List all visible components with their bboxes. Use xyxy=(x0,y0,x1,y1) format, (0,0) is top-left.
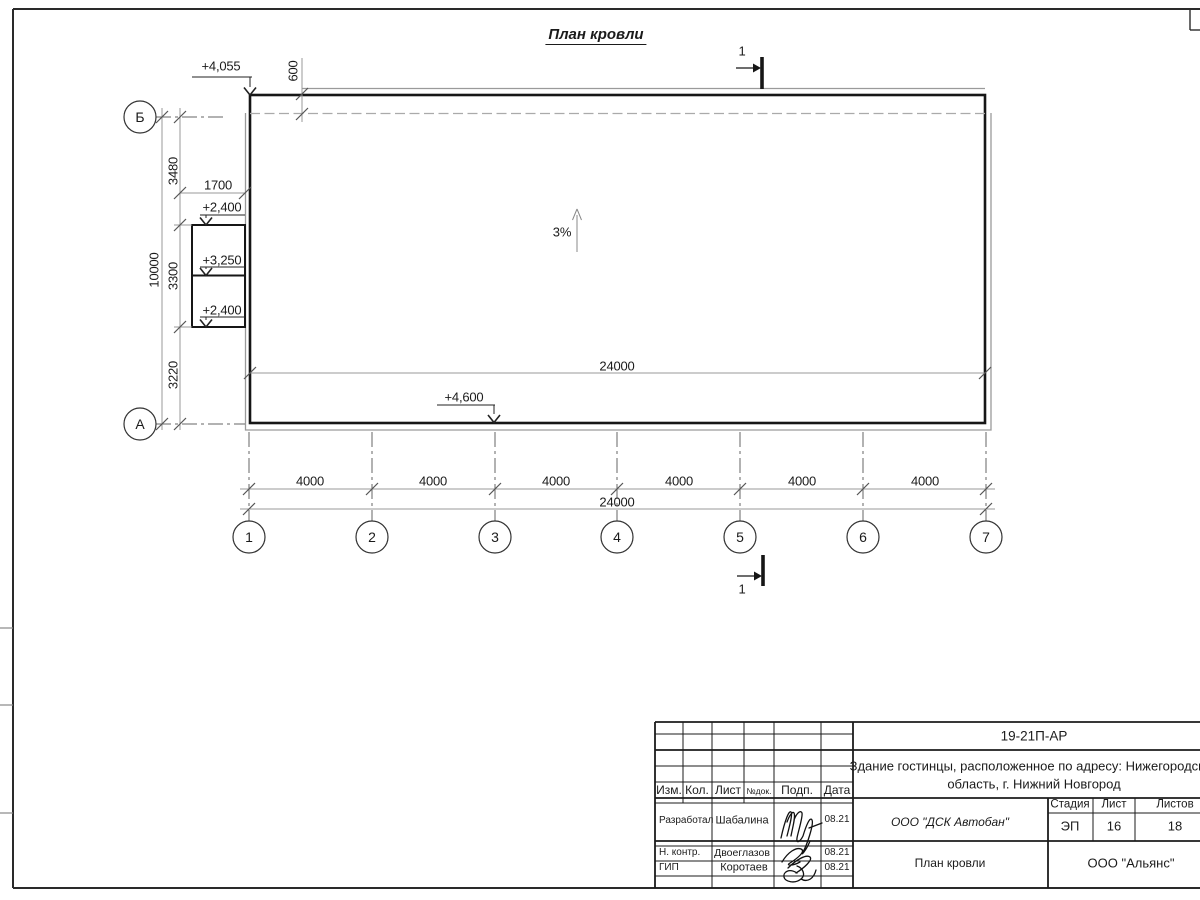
dim-bottom-total: 24000 xyxy=(599,496,634,509)
tb-stage-value: ЭП xyxy=(1061,820,1080,833)
dim-bottom-segment-6: 4000 xyxy=(911,475,939,488)
elevation-canopy-bottom: +2,400 xyxy=(203,304,242,317)
tb-name-ncontrol: Двоеглазов xyxy=(714,848,770,859)
elevation-leaders xyxy=(192,77,500,423)
slope-label: 3% xyxy=(553,226,571,239)
elevation-canopy-mid: +3,250 xyxy=(203,254,242,267)
tb-doc-code: 19-21П-АР xyxy=(1001,729,1068,743)
dim-bottom-segment-2: 4000 xyxy=(419,475,447,488)
tb-project-name-line2: область, г. Нижний Новгород xyxy=(947,778,1120,791)
axis-label-b: Б xyxy=(135,110,144,124)
axis-label-7: 7 xyxy=(982,530,990,544)
tb-org: ООО "ДСК Автобан" xyxy=(891,816,1009,828)
tb-col-izm: Изм. xyxy=(656,784,682,796)
frame-corner-cell xyxy=(1190,9,1200,30)
axis-label-6: 6 xyxy=(859,530,867,544)
tb-col-ndok: №док. xyxy=(747,787,772,796)
dim-parapet: 600 xyxy=(287,60,300,81)
dim-bottom-segment-4: 4000 xyxy=(665,475,693,488)
axis-label-1: 1 xyxy=(245,530,253,544)
tb-role-gip: ГИП xyxy=(659,863,679,873)
dim-left-total: 10000 xyxy=(148,252,161,287)
drawing-sheet: План кровли +4,055 +2,400 +3,250 +2,400 … xyxy=(0,0,1200,900)
roof-outline xyxy=(250,95,985,423)
elevation-bottom: +4,600 xyxy=(445,391,484,404)
axis-label-3: 3 xyxy=(491,530,499,544)
sheet-frame xyxy=(13,9,1200,888)
section-label-bottom: 1 xyxy=(738,583,745,596)
dimension-ticks xyxy=(156,88,992,515)
tb-sheet-header: Лист xyxy=(1102,799,1127,811)
tb-sheets-value: 18 xyxy=(1168,820,1182,833)
signature-strokes xyxy=(781,812,822,882)
tb-drawing-title: План кровли xyxy=(915,857,986,869)
building-wall-lines xyxy=(246,89,992,431)
axis-lines xyxy=(156,117,986,521)
tb-col-data: Дата xyxy=(824,784,851,796)
dim-left-segment-1: 3480 xyxy=(167,157,180,185)
dim-left-segment-2: 3300 xyxy=(167,262,180,290)
tb-date-gip: 08.21 xyxy=(824,863,849,873)
axis-label-2: 2 xyxy=(368,530,376,544)
tb-sheet-value: 16 xyxy=(1107,820,1121,833)
dim-inner-width: 24000 xyxy=(599,360,634,373)
tb-role-developer: Разработал xyxy=(659,816,713,826)
tb-date-developer: 08.21 xyxy=(824,815,849,825)
drawing-title-heading: План кровли xyxy=(545,27,646,45)
elevation-canopy-top: +2,400 xyxy=(203,201,242,214)
tb-sheets-header: Листов xyxy=(1156,799,1193,811)
dim-bottom-segment-3: 4000 xyxy=(542,475,570,488)
tb-name-developer: Шабалина xyxy=(715,816,768,827)
axis-label-5: 5 xyxy=(736,530,744,544)
dim-bottom-segment-5: 4000 xyxy=(788,475,816,488)
binding-margin-ticks xyxy=(0,628,13,813)
axis-label-4: 4 xyxy=(613,530,621,544)
section-label-top: 1 xyxy=(738,45,745,58)
dim-bottom-segment-1: 4000 xyxy=(296,475,324,488)
tb-col-kol: Кол. xyxy=(685,784,709,796)
slope-arrow xyxy=(573,209,582,252)
dim-left-segment-3: 3220 xyxy=(167,361,180,389)
axis-label-a: А xyxy=(135,417,144,431)
tb-col-list: Лист xyxy=(715,784,741,796)
tb-stage-header: Стадия xyxy=(1050,799,1089,811)
tb-col-podp: Подп. xyxy=(781,784,813,796)
section-marks xyxy=(736,57,763,586)
tb-company: ООО "Альянс" xyxy=(1088,857,1175,870)
tb-project-name-line1: Здание гостинцы, расположенное по адресу… xyxy=(850,760,1200,773)
dimension-lines xyxy=(162,58,995,509)
tb-name-gip: Коротаев xyxy=(720,863,768,874)
tb-date-ncontrol: 08.21 xyxy=(824,848,849,858)
tb-role-ncontrol: Н. контр. xyxy=(659,848,700,858)
dim-canopy-offset: 1700 xyxy=(204,179,232,192)
elevation-top-left: +4,055 xyxy=(202,60,241,73)
